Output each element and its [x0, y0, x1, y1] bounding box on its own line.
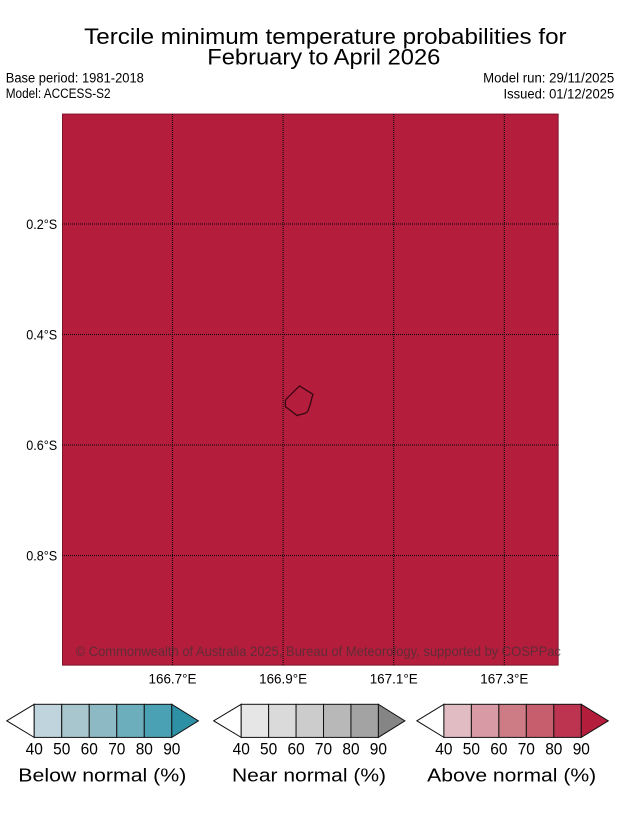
svg-text:February to April 2026: February to April 2026 [207, 44, 440, 69]
svg-text:Issued: 01/12/2025: Issued: 01/12/2025 [504, 86, 615, 101]
svg-text:70: 70 [108, 741, 125, 759]
svg-text:50: 50 [463, 741, 480, 759]
svg-text:90: 90 [370, 741, 387, 759]
svg-text:0.2°S: 0.2°S [26, 216, 57, 232]
svg-text:90: 90 [163, 741, 180, 759]
svg-text:70: 70 [315, 741, 332, 759]
svg-text:167.3°E: 167.3°E [480, 670, 528, 686]
svg-text:40: 40 [233, 741, 250, 759]
svg-text:60: 60 [81, 741, 98, 759]
svg-text:Base period: 1981-2018: Base period: 1981-2018 [6, 71, 144, 86]
svg-text:0.8°S: 0.8°S [26, 547, 57, 563]
svg-text:50: 50 [53, 741, 70, 759]
svg-text:80: 80 [545, 741, 562, 759]
svg-text:40: 40 [435, 741, 452, 759]
svg-text:Near normal (%): Near normal (%) [232, 765, 386, 785]
svg-text:0.4°S: 0.4°S [26, 326, 57, 342]
svg-text:90: 90 [573, 741, 590, 759]
svg-text:60: 60 [490, 741, 507, 759]
svg-text:Model run: 29/11/2025: Model run: 29/11/2025 [483, 71, 614, 86]
svg-text:Above normal (%): Above normal (%) [427, 765, 596, 785]
svg-text:Below normal (%): Below normal (%) [18, 765, 186, 785]
svg-text:80: 80 [342, 741, 359, 759]
svg-text:166.9°E: 166.9°E [259, 670, 307, 686]
svg-text:50: 50 [260, 741, 277, 759]
svg-text:© Commonwealth of Australia 20: © Commonwealth of Australia 2025, Bureau… [76, 643, 561, 659]
svg-text:80: 80 [136, 741, 153, 759]
svg-text:60: 60 [288, 741, 305, 759]
svg-text:Model: ACCESS-S2: Model: ACCESS-S2 [6, 86, 111, 101]
svg-text:40: 40 [26, 741, 43, 759]
svg-text:167.1°E: 167.1°E [370, 670, 418, 686]
svg-text:70: 70 [518, 741, 535, 759]
svg-text:0.6°S: 0.6°S [26, 437, 57, 453]
svg-text:166.7°E: 166.7°E [149, 670, 197, 686]
